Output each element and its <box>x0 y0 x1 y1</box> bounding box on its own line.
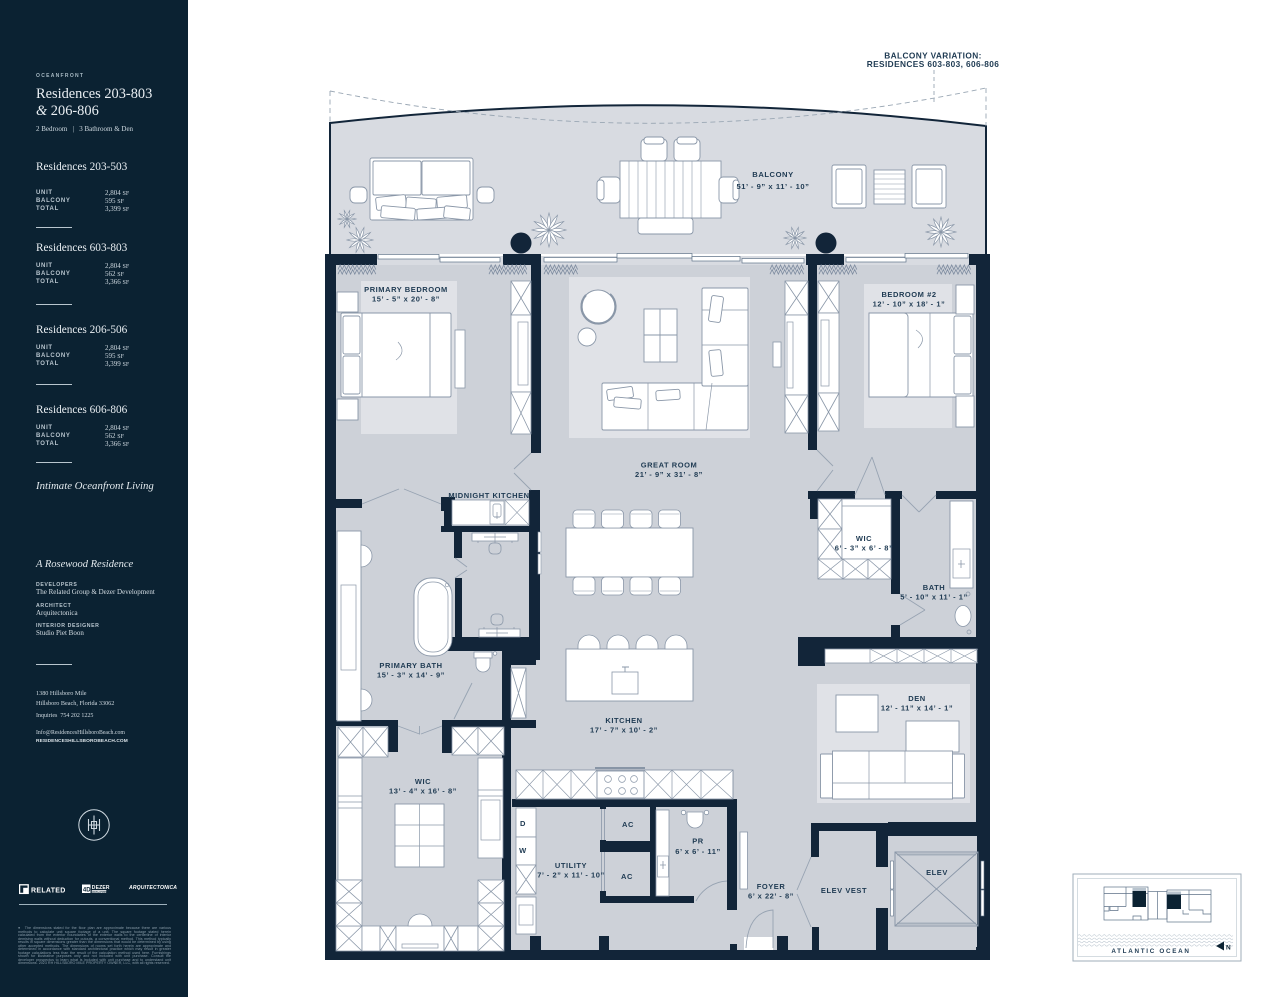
svg-text:GREAT ROOM: GREAT ROOM <box>641 461 698 470</box>
svg-text:17’ - 7” x 10’ - 2”: 17’ - 7” x 10’ - 2” <box>590 725 658 734</box>
svg-text:7’ - 2” x 11’ - 10”: 7’ - 2” x 11’ - 10” <box>537 870 605 879</box>
svg-text:BATH: BATH <box>923 583 945 592</box>
svg-text:ELEV: ELEV <box>926 868 948 877</box>
svg-text:AC: AC <box>622 820 634 829</box>
svg-text:12’ - 11” x 14’ - 1”: 12’ - 11” x 14’ - 1” <box>881 703 953 712</box>
svg-text:N: N <box>1226 945 1231 952</box>
svg-text:13’ - 4” x 16’ - 8”: 13’ - 4” x 16’ - 8” <box>389 786 457 795</box>
svg-text:WIC: WIC <box>415 777 431 786</box>
svg-text:6’ - 3” x 6’ - 8”: 6’ - 3” x 6’ - 8” <box>835 543 894 552</box>
svg-text:KITCHEN: KITCHEN <box>605 716 642 725</box>
svg-text:D: D <box>520 819 526 828</box>
svg-text:DEN: DEN <box>908 694 926 703</box>
svg-text:ATLANTIC OCEAN: ATLANTIC OCEAN <box>1111 948 1190 955</box>
svg-text:WIC: WIC <box>856 534 872 543</box>
svg-text:21’ - 9” x 31’ - 8”: 21’ - 9” x 31’ - 8” <box>635 470 703 479</box>
svg-text:15’ - 5” x 20’ - 8”: 15’ - 5” x 20’ - 8” <box>372 294 440 303</box>
svg-text:5’ - 10” x 11’ - 1”: 5’ - 10” x 11’ - 1” <box>900 592 968 601</box>
svg-text:FOYER: FOYER <box>757 882 786 891</box>
svg-text:BEDROOM #2: BEDROOM #2 <box>881 290 936 299</box>
svg-text:15’ - 3” x 14’ - 9”: 15’ - 3” x 14’ - 9” <box>377 670 445 679</box>
svg-text:51’ - 9” x 11’ - 10”: 51’ - 9” x 11’ - 10” <box>736 182 809 191</box>
svg-text:PRIMARY BATH: PRIMARY BATH <box>379 661 442 670</box>
svg-text:AC: AC <box>621 872 633 881</box>
svg-text:PR: PR <box>692 837 704 846</box>
svg-text:PRIMARY BEDROOM: PRIMARY BEDROOM <box>364 285 448 294</box>
svg-text:W: W <box>519 846 527 855</box>
svg-text:12’ - 10” x 18’ - 1”: 12’ - 10” x 18’ - 1” <box>873 299 946 308</box>
svg-text:UTILITY: UTILITY <box>555 861 587 870</box>
svg-text:MIDNIGHT KITCHEN: MIDNIGHT KITCHEN <box>448 491 529 500</box>
svg-text:6’ x 6’ - 11”: 6’ x 6’ - 11” <box>675 847 721 856</box>
svg-text:BALCONY: BALCONY <box>752 170 793 179</box>
svg-text:ELEV VEST: ELEV VEST <box>821 886 867 895</box>
svg-text:RESIDENCES 603-803, 606-806: RESIDENCES 603-803, 606-806 <box>867 59 1000 69</box>
svg-text:6’ x 22’ - 8”: 6’ x 22’ - 8” <box>748 891 794 900</box>
